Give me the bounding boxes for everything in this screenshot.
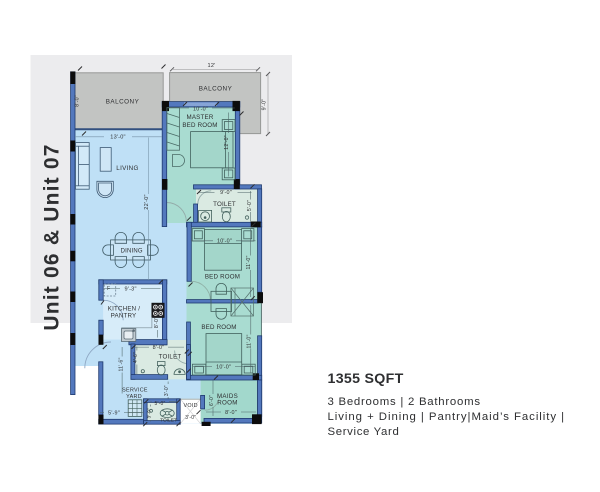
svg-text:5'-0": 5'-0" xyxy=(155,401,166,407)
svg-text:8'-0": 8'-0" xyxy=(154,317,160,328)
svg-text:F: F xyxy=(107,286,110,292)
svg-text:MASTER: MASTER xyxy=(187,114,214,121)
svg-text:13'-0": 13'-0" xyxy=(110,134,125,140)
svg-text:ROOM: ROOM xyxy=(217,400,237,407)
svg-text:DINING: DINING xyxy=(121,248,143,254)
svg-text:11'-0": 11'-0" xyxy=(246,255,252,269)
svg-text:8'-0": 8'-0" xyxy=(75,95,81,107)
svg-text:BALCONY: BALCONY xyxy=(106,98,140,105)
svg-text:8'-0": 8'-0" xyxy=(225,410,237,416)
svg-text:5'-9": 5'-9" xyxy=(108,410,120,416)
svg-text:10'-0": 10'-0" xyxy=(216,364,231,370)
svg-text:10'-0": 10'-0" xyxy=(193,106,208,112)
svg-text:12': 12' xyxy=(208,63,216,69)
svg-text:PANTRY: PANTRY xyxy=(111,313,137,320)
svg-text:11'-6": 11'-6" xyxy=(119,357,125,371)
svg-text:22'-0": 22'-0" xyxy=(144,194,150,209)
svg-text:10'-0": 10'-0" xyxy=(217,239,232,245)
svg-text:VOID: VOID xyxy=(184,403,198,409)
svg-text:KITCHEN /: KITCHEN / xyxy=(108,305,140,312)
svg-text:9'-0": 9'-0" xyxy=(220,190,232,196)
svg-text:Service Yard: Service Yard xyxy=(328,426,400,438)
svg-text:BED ROOM: BED ROOM xyxy=(205,274,240,281)
svg-text:TOILET: TOILET xyxy=(213,201,236,208)
svg-text:6'-0": 6'-0" xyxy=(209,395,215,406)
svg-text:SERVICE: SERVICE xyxy=(122,387,148,393)
svg-text:1355 SQFT: 1355 SQFT xyxy=(328,371,404,387)
svg-text:9'-3": 9'-3" xyxy=(125,286,137,292)
svg-text:9'-0": 9'-0" xyxy=(262,99,268,111)
svg-text:BED ROOM: BED ROOM xyxy=(182,122,217,129)
svg-text:12'-0": 12'-0" xyxy=(224,135,230,149)
svg-text:3'-0": 3'-0" xyxy=(164,385,170,396)
svg-text:BED ROOM: BED ROOM xyxy=(201,324,236,331)
svg-text:11'-0": 11'-0" xyxy=(247,334,253,348)
svg-text:Living + Dining | Pantry|Maid’: Living + Dining | Pantry|Maid’s Facility… xyxy=(328,411,566,423)
svg-text:Unit 06 & Unit 07: Unit 06 & Unit 07 xyxy=(41,143,64,330)
svg-text:BALCONY: BALCONY xyxy=(199,86,233,93)
svg-text:8'-0": 8'-0" xyxy=(153,345,165,351)
svg-text:3'-0": 3'-0" xyxy=(147,408,152,418)
svg-text:YARD: YARD xyxy=(126,394,142,400)
svg-text:3'-0": 3'-0" xyxy=(185,415,196,421)
svg-text:5'-0": 5'-0" xyxy=(247,200,253,211)
svg-text:3 Bedrooms | 2 Bathrooms: 3 Bedrooms | 2 Bathrooms xyxy=(328,396,481,408)
svg-text:LIVING: LIVING xyxy=(116,165,138,172)
svg-text:TOILET: TOILET xyxy=(160,418,177,424)
svg-text:4'-6": 4'-6" xyxy=(133,352,139,363)
svg-text:TOILET: TOILET xyxy=(159,353,182,360)
